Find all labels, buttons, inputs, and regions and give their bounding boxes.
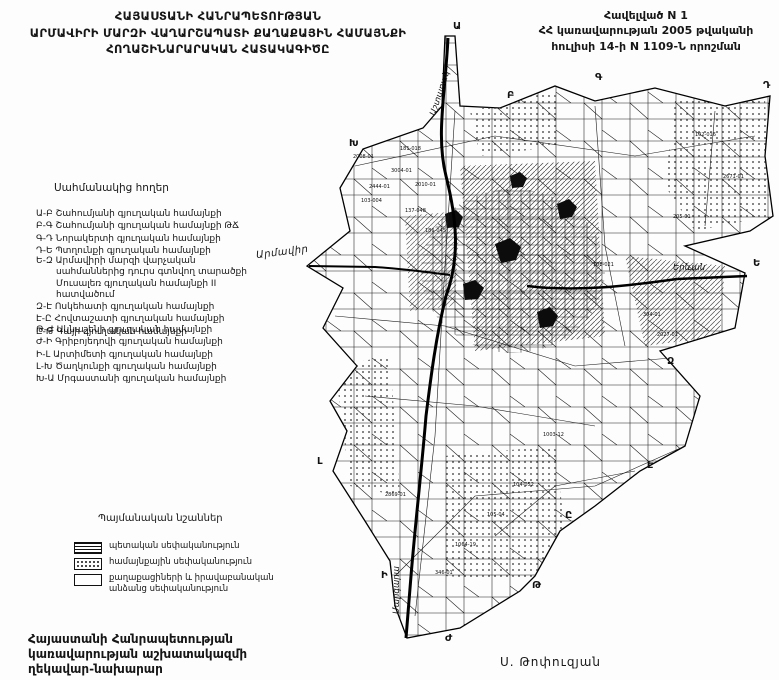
legend: պետական սեփականություն համայնքային սեփակ… <box>74 541 274 597</box>
legend-item-private: քաղաքացիների և իրավաբանական անձանց սեփակ… <box>74 573 274 594</box>
legend-label: պետական սեփականություն <box>109 541 240 552</box>
boundary-letter: Դ <box>763 80 771 91</box>
border-lands-group-3: Թ-Ժ Ակնաշենի գյուղական համայնքի Ժ-Ի Գրիբ… <box>36 325 258 386</box>
private-ownership-swatch-icon <box>74 574 102 586</box>
boundary-letter: Ը <box>565 510 572 521</box>
parcel-code: 2008-01 <box>353 154 374 160</box>
scanned-map-page: ՀԱՅԱՍՏԱՆԻ ՀԱՆՐԱՊԵՏՈՒԹՅԱՆ ԱՐՄԱՎԻՐԻ ՄԱՐԶԻ … <box>0 0 779 680</box>
legend-item-community: համայնքային սեփականություն <box>74 557 274 570</box>
parcel-code: 1003-12 <box>543 432 564 438</box>
parcel-code: 2869-01 <box>385 492 406 498</box>
legend-heading: Պայմանական նշաններ <box>98 513 223 524</box>
border-land-item: Ի-Լ Արտիմետի գյուղական համայնքի <box>36 350 258 361</box>
parcel-code: 304-01 <box>643 312 661 318</box>
signature-name: Ս. Թոփուզյան <box>500 655 601 669</box>
border-land-item: Ժ-Ի Գրիբոյեդովի գյուղական համայնքի <box>36 337 258 348</box>
state-ownership-swatch-icon <box>74 542 102 554</box>
boundary-letter: Ա <box>453 21 461 32</box>
parcel-code: 3004-01 <box>391 168 412 174</box>
parcel-code: 105-04 <box>487 512 505 518</box>
parcel-code: 205-01 <box>673 214 691 220</box>
parcel-code: 186-045 <box>425 228 446 234</box>
boundary-letter: Թ <box>532 580 542 591</box>
border-land-item: Թ-Ժ Ակնաշենի գյուղական համայնքի <box>36 325 258 336</box>
community-ownership-swatch-icon <box>74 558 102 570</box>
border-land-item: Խ-Ա Մրգաստանի գյուղական համայնքի <box>36 374 258 385</box>
parcel-code: 104-052 <box>513 482 534 488</box>
boundary-letter: Ի <box>381 570 388 581</box>
footer-signatory-title: Հայաստանի Հանրապետության կառավարության ա… <box>28 632 247 677</box>
border-land-item: Է-Ը Հովտաշատի գյուղական համայնքի <box>36 314 258 325</box>
footer-line-3: ղեկավար-նախարար <box>28 662 247 677</box>
boundary-letter: Գ <box>595 72 603 83</box>
legend-label: համայնքային սեփականություն <box>109 557 252 568</box>
border-land-item: Զ-Է Ոսկեհատի գյուղական համայնքի <box>36 302 258 313</box>
parcel-code: 2010-01 <box>415 182 436 188</box>
parcel-code: 2444-01 <box>369 184 390 190</box>
parcel-code: 1064-19 <box>455 542 476 548</box>
parcel-code: 103-004 <box>361 198 382 204</box>
border-land-item: Ե-Զ Արմավիրի մարզի վարչական սահմաններից … <box>36 256 258 301</box>
border-land-item: Լ-Խ Ծաղկունքի գյուղական համայնքի <box>36 362 258 373</box>
footer-line-1: Հայաստանի Հանրապետության <box>28 632 247 647</box>
border-land-item: Ա-Բ Շահումյանի գյուղական համայնքի <box>36 209 258 220</box>
parcel-code: 346-01 <box>435 570 453 576</box>
cadastral-map: Երևան Աշտարակ Մարգարա Ա Բ Գ Դ Ե Զ Է Ը Թ … <box>295 16 779 648</box>
legend-item-state: պետական սեփականություն <box>74 541 274 554</box>
boundary-letter: Ե <box>753 258 760 269</box>
boundary-letter: Խ <box>349 138 359 149</box>
border-land-item: Գ-Դ Նորակերտի գյուղական համայնքի <box>36 234 258 245</box>
border-land-item: Բ-Գ Շահումյանի գյուղական համայնքի ԹՃ <box>36 221 258 232</box>
road-label-margara: Մարգարա <box>392 566 402 614</box>
parcel-code: 137-048 <box>405 208 426 214</box>
boundary-letter: Բ <box>507 90 514 101</box>
boundary-letter: Է <box>647 460 654 471</box>
road-label-yerevan: Երևան <box>673 263 706 273</box>
parcel-code: 102-016 <box>695 132 716 138</box>
parcel-code: 2027-01 <box>657 332 678 338</box>
boundary-letter: Զ <box>667 356 674 367</box>
legend-label: քաղաքացիների և իրավաբանական անձանց սեփակ… <box>109 573 274 594</box>
boundary-letter: Լ <box>317 456 323 467</box>
footer-line-2: կառավարության աշխատակազմի <box>28 647 247 662</box>
boundary-letter: Ժ <box>445 633 453 644</box>
border-lands-group-1: Ա-Բ Շահումյանի գյուղական համայնքի Բ-Գ Շա… <box>36 209 258 258</box>
border-lands-heading: Սահմանակից հողեր <box>54 182 169 194</box>
parcel-code: 108-021 <box>593 262 614 268</box>
parcel-code: 2671-01 <box>723 174 744 180</box>
parcel-code: 181-018 <box>400 146 421 152</box>
